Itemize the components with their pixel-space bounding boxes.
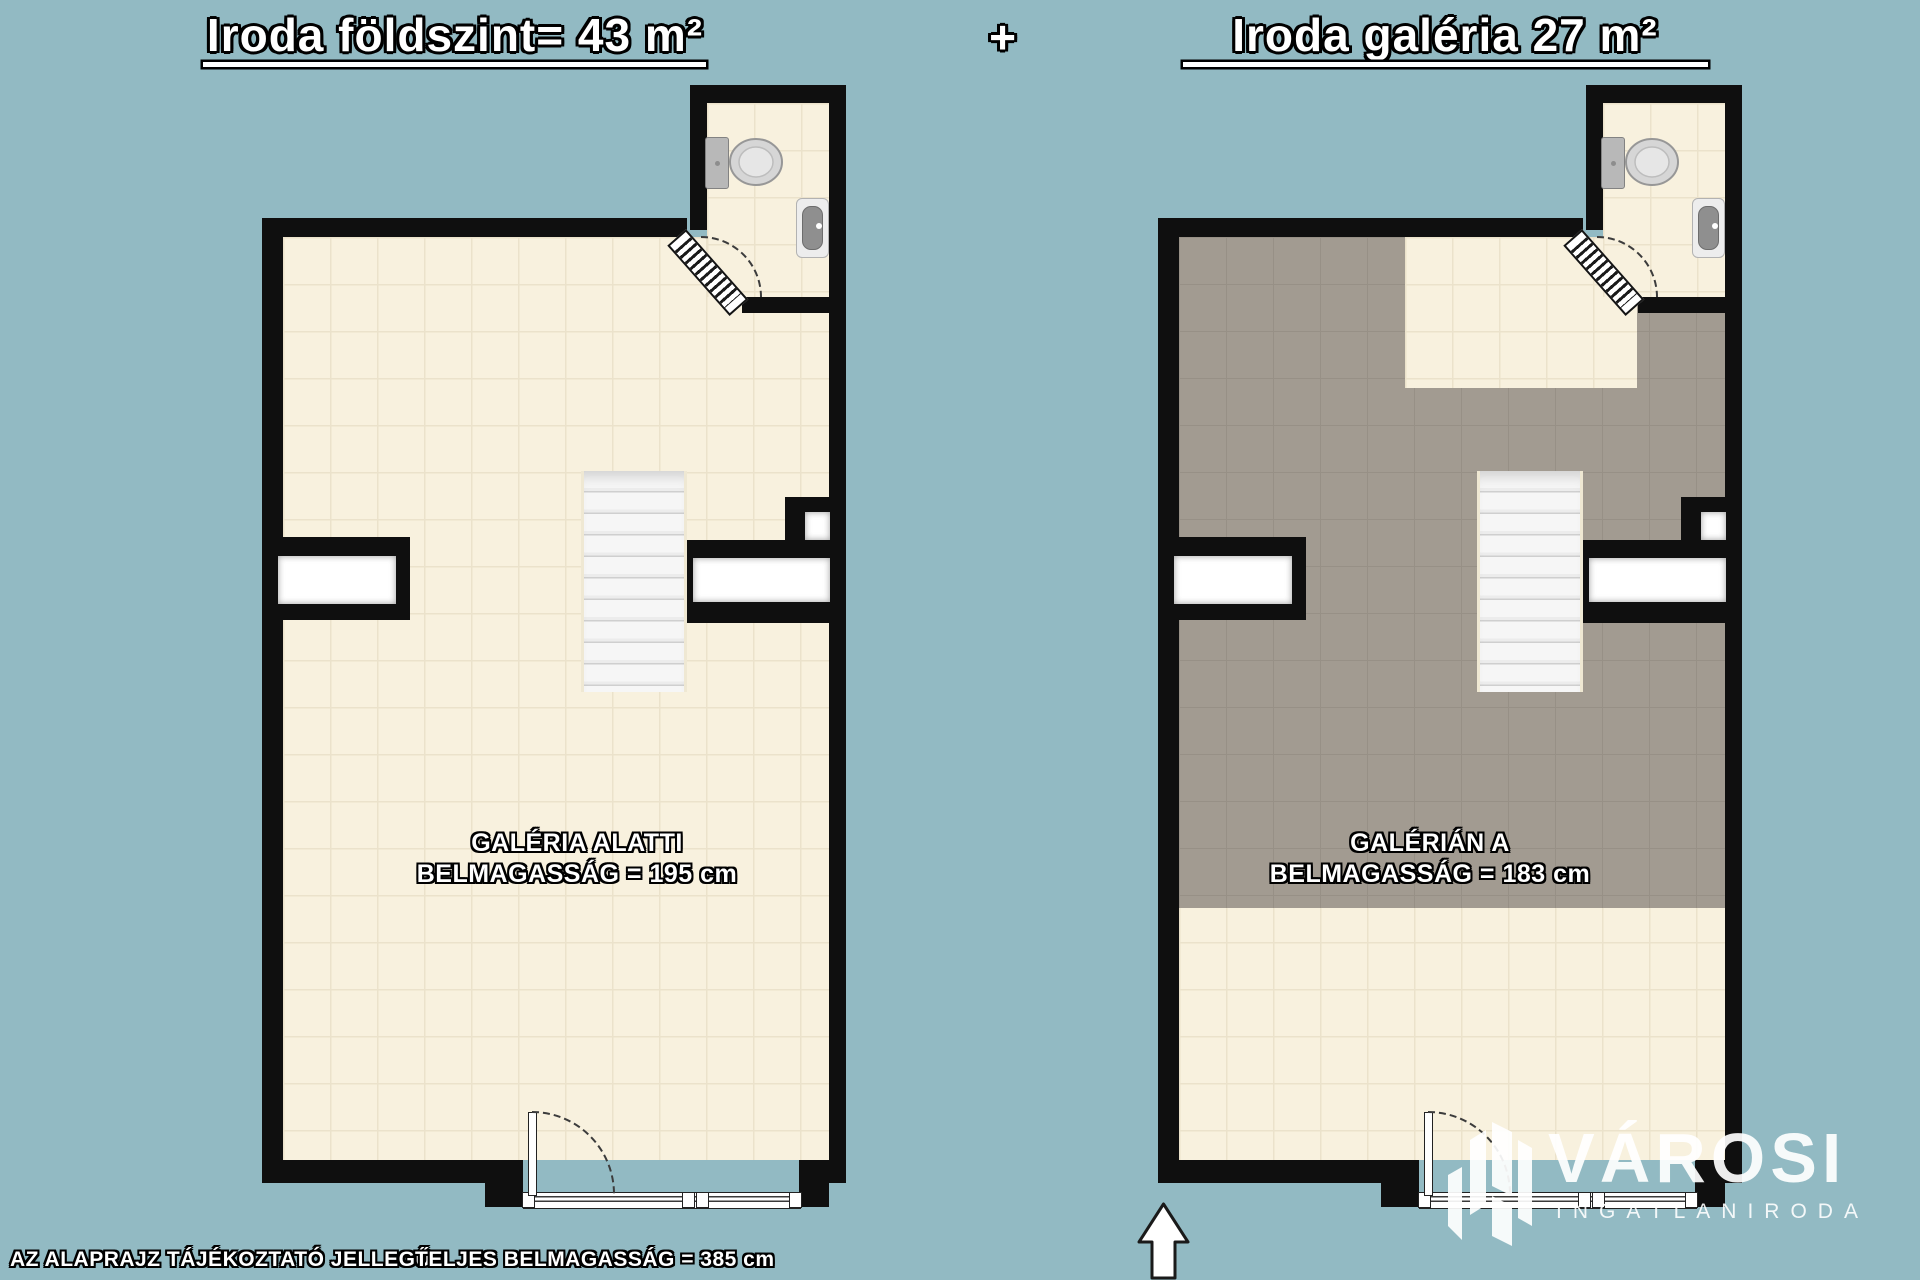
room-label-ground: GALÉRIA ALATTI BELMAGASSÁG = 195 cm <box>297 828 857 890</box>
toilet-icon <box>730 139 1678 185</box>
wall <box>262 218 283 1183</box>
north-arrow-icon <box>1139 1204 1188 1278</box>
wall <box>829 85 846 1183</box>
floor-main-left <box>283 237 829 1160</box>
room-label-line2: BELMAGASSÁG = 183 cm <box>1150 859 1710 890</box>
toilet-icon <box>705 137 729 189</box>
wall <box>1158 218 1583 237</box>
disclaimer-note: AZ ALAPRAJZ TÁJÉKOZTATÓ JELLEGŰ <box>10 1248 431 1272</box>
window <box>1701 512 1726 540</box>
sink-icon <box>1692 198 1725 258</box>
sink-icon <box>796 198 829 258</box>
wall <box>1638 297 1725 313</box>
stairs-icon <box>581 471 687 692</box>
title-underline-right <box>1183 62 1708 67</box>
floorplan-poster: Iroda földszint= 43 m² + Iroda galéria 2… <box>0 0 1920 1280</box>
window <box>278 556 396 604</box>
wall <box>1725 85 1742 1183</box>
stairs-icon <box>1477 471 1583 692</box>
wall <box>1586 85 1742 103</box>
brand-name: VÁROSI <box>1548 1118 1846 1198</box>
page-title-gallery: Iroda galéria 27 m² <box>1145 8 1745 62</box>
wall <box>1381 1183 1419 1207</box>
wall <box>690 85 846 103</box>
window <box>693 558 830 602</box>
wall <box>262 1160 523 1183</box>
wall <box>799 1160 846 1183</box>
room-label-line1: GALÉRIÁN A <box>1150 828 1710 859</box>
title-underline-left <box>203 62 706 67</box>
room-label-line1: GALÉRIA ALATTI <box>297 828 857 859</box>
window <box>1174 556 1292 604</box>
door-leaf <box>1424 1112 1433 1196</box>
wall <box>799 1183 829 1207</box>
window <box>805 512 830 540</box>
entrance-glazing <box>523 1192 801 1209</box>
wall <box>485 1183 523 1207</box>
toilet-icon <box>1601 137 1625 189</box>
door-leaf <box>528 1112 537 1196</box>
window <box>1589 558 1726 602</box>
wall <box>262 218 687 237</box>
room-label-line2: BELMAGASSÁG = 195 cm <box>297 859 857 890</box>
brand-subtitle: INGATLANIRODA <box>1556 1200 1869 1224</box>
page-title-ground-floor: Iroda földszint= 43 m² <box>155 8 755 62</box>
wall <box>1158 218 1179 1183</box>
wall <box>742 297 829 313</box>
plus-sign: + <box>953 10 1053 64</box>
room-label-gallery: GALÉRIÁN A BELMAGASSÁG = 183 cm <box>1150 828 1710 890</box>
wall <box>1158 1160 1419 1183</box>
total-height-note: TELJES BELMAGASSÁG = 385 cm <box>415 1248 775 1272</box>
